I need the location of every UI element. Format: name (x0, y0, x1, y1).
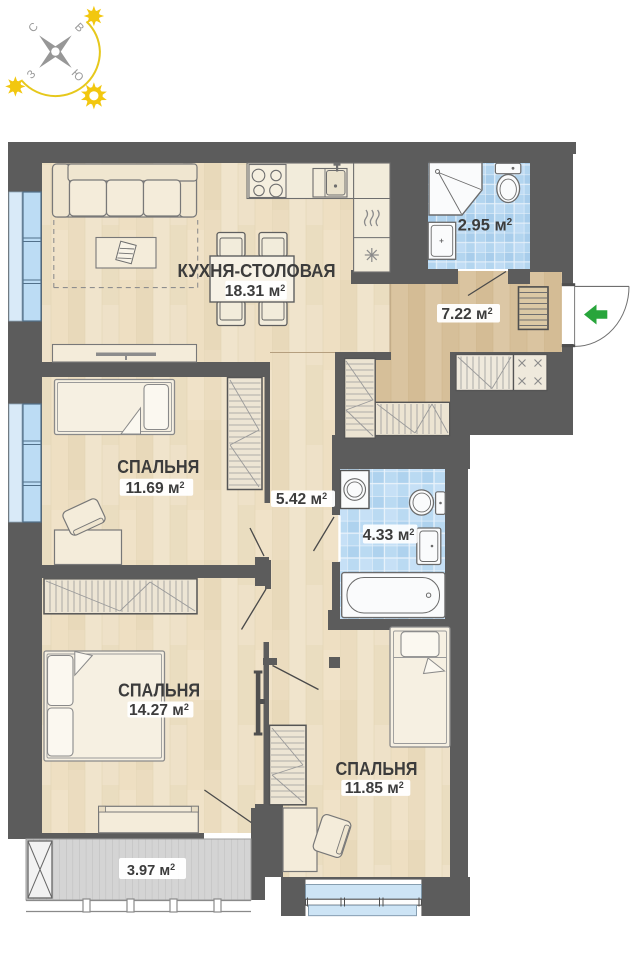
svg-text:5.42 м2: 5.42 м2 (276, 491, 327, 508)
svg-text:3.97 м2: 3.97 м2 (127, 862, 175, 879)
svg-text:14.27 м2: 14.27 м2 (129, 702, 189, 719)
svg-text:2.95 м2: 2.95 м2 (458, 217, 513, 235)
svg-text:18.31 м2: 18.31 м2 (225, 283, 286, 300)
svg-text:СПАЛЬНЯ: СПАЛЬНЯ (336, 758, 418, 779)
svg-text:СПАЛЬНЯ: СПАЛЬНЯ (118, 679, 200, 700)
svg-text:СПАЛЬНЯ: СПАЛЬНЯ (117, 456, 199, 477)
svg-text:11.69 м2: 11.69 м2 (125, 480, 184, 497)
svg-text:4.33 м2: 4.33 м2 (363, 527, 415, 544)
svg-text:КУХНЯ-СТОЛОВАЯ: КУХНЯ-СТОЛОВАЯ (178, 260, 336, 281)
svg-text:11.85 м2: 11.85 м2 (345, 780, 404, 797)
svg-text:7.22 м2: 7.22 м2 (441, 306, 492, 323)
